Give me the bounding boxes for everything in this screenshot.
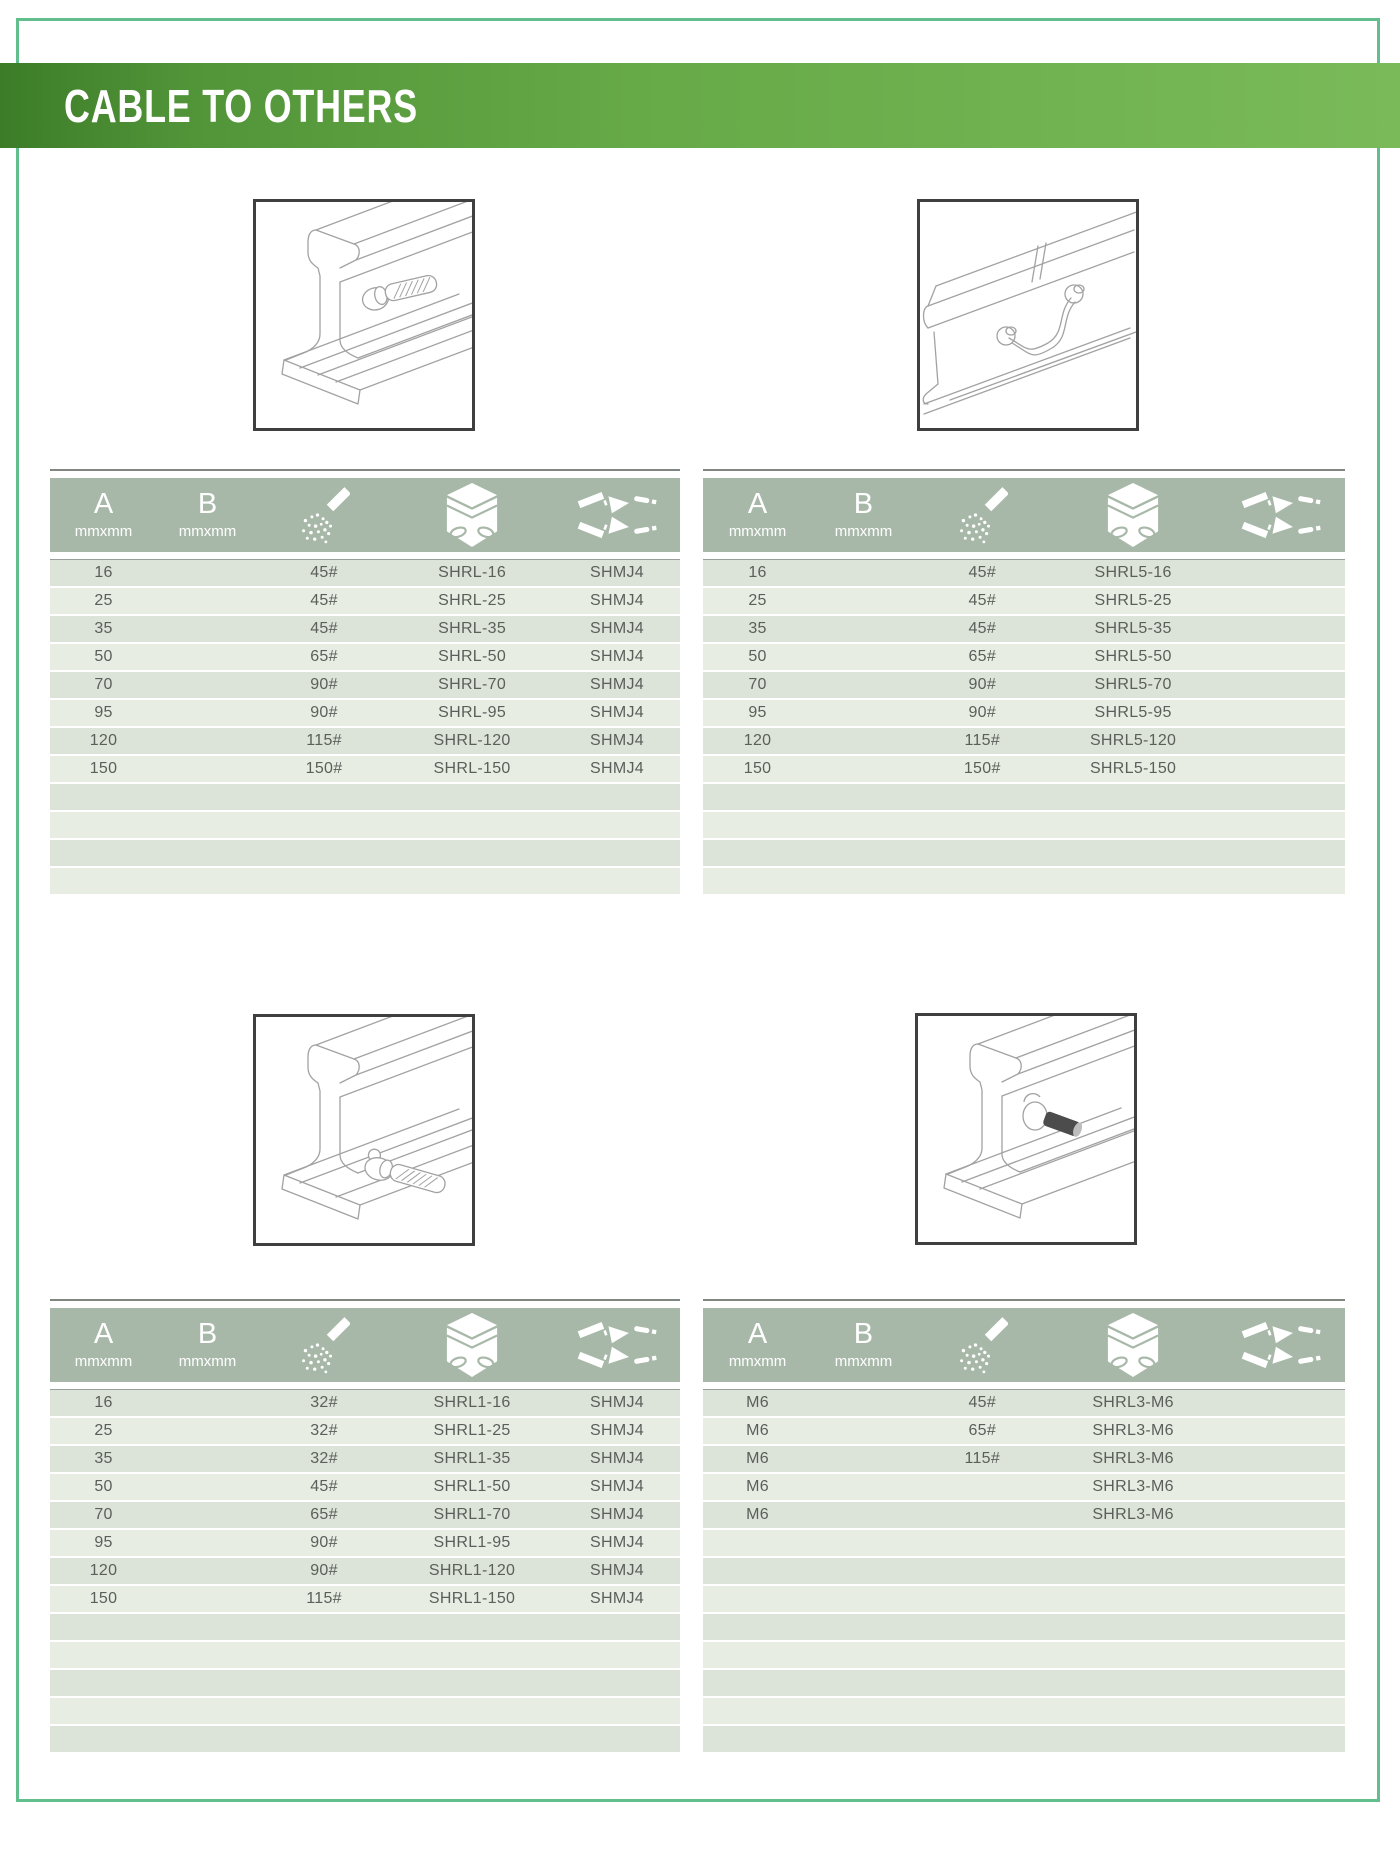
table-row-empty [50,784,680,812]
cell-a: 95 [94,1534,112,1552]
cell-a: 35 [94,1450,112,1468]
cell-powder: 65# [310,1506,338,1524]
cell-a: 16 [94,1394,112,1412]
cell-a: 35 [748,620,766,638]
cell-powder: 115# [964,1450,1000,1468]
cell-a: 50 [748,648,766,666]
cell-a: 150 [90,760,118,778]
spec-table-cable-bond: A mmxmm B mmxmm [703,469,1345,896]
table-row: 2545#SHRL5-25 [703,588,1345,616]
cell-mold: SHRL3-M6 [1092,1394,1174,1412]
cell-powder: 65# [968,648,996,666]
cell-a: M6 [746,1450,769,1468]
table-row: 2532#SHRL1-25SHMJ4 [50,1418,680,1446]
table-row: 5065#SHRL5-50 [703,644,1345,672]
cell-a: 120 [90,732,118,750]
table-row-empty [703,784,1345,812]
cell-mold: SHRL5-150 [1090,760,1176,778]
cell-powder: 90# [310,1562,338,1580]
cell-a: 25 [748,592,766,610]
table-row-empty [50,840,680,868]
cell-a: 35 [94,620,112,638]
rail-foot-cable-drawing [256,1017,472,1243]
welding-powder-icon [956,1315,1008,1375]
cell-joint: SHMJ4 [590,1562,644,1580]
cell-mold: SHRL1-120 [429,1562,515,1580]
welding-powder-icon [298,1315,350,1375]
table-row: 3545#SHRL5-35 [703,616,1345,644]
cell-mold: SHRL-95 [438,704,506,722]
table-row-empty [703,1670,1345,1698]
cell-powder: 32# [310,1422,338,1440]
cell-joint: SHMJ4 [590,1478,644,1496]
cell-mold: SHRL3-M6 [1092,1450,1174,1468]
cable-joint-icon [576,487,658,543]
table-row: 12090#SHRL1-120SHMJ4 [50,1558,680,1586]
table-row-empty [50,812,680,840]
table-header: A mmxmm B mmxmm [703,478,1345,552]
column-header-b: B mmxmm [179,1319,236,1370]
cell-powder: 90# [310,1534,338,1552]
table-body: 1632#SHRL1-16SHMJ42532#SHRL1-25SHMJ43532… [50,1390,680,1754]
table-row: 9590#SHRL-95SHMJ4 [50,700,680,728]
cell-powder: 45# [968,1394,996,1412]
spec-table-cable-to-rail-web: A mmxmm B mmxmm [50,469,680,896]
table-row: 7090#SHRL5-70 [703,672,1345,700]
table-row-empty [703,812,1345,840]
cell-joint: SHMJ4 [590,1450,644,1468]
cell-powder: 150# [964,760,1001,778]
cell-powder: 65# [968,1422,996,1440]
welding-powder-icon [298,485,350,545]
cell-powder: 90# [968,676,996,694]
cell-powder: 150# [306,760,343,778]
cell-joint: SHMJ4 [590,732,644,750]
table-row: 7090#SHRL-70SHMJ4 [50,672,680,700]
illustration-box-cable-to-rail-foot [253,1014,475,1246]
title-banner: CABLE TO OTHERS [0,63,1400,148]
cell-a: 150 [90,1590,118,1608]
table-header: A mmxmm B mmxmm [50,1308,680,1382]
table-body: M645#SHRL3-M6M665#SHRL3-M6M6115#SHRL3-M6… [703,1390,1345,1754]
cable-joint-icon [576,1317,658,1373]
cell-joint: SHMJ4 [590,1506,644,1524]
cell-a: 120 [744,732,772,750]
illustration-box-cable-bond [917,199,1139,431]
table-row: 150115#SHRL1-150SHMJ4 [50,1586,680,1614]
cell-powder: 32# [310,1394,338,1412]
cell-a: 16 [748,564,766,582]
table-row: 9590#SHRL5-95 [703,700,1345,728]
cable-joint-icon [1240,487,1322,543]
cell-joint: SHMJ4 [590,1394,644,1412]
cell-mold: SHRL1-95 [434,1534,511,1552]
rail-bond-cable-drawing [920,202,1136,428]
graphite-mold-icon [1105,1313,1161,1377]
table-row: 150150#SHRL5-150 [703,756,1345,784]
cell-mold: SHRL5-25 [1095,592,1172,610]
table-row-empty [50,1670,680,1698]
cell-mold: SHRL-50 [438,648,506,666]
column-header-a: A mmxmm [729,489,786,540]
cell-a: 25 [94,1422,112,1440]
cell-powder: 115# [306,732,342,750]
cell-mold: SHRL3-M6 [1092,1422,1174,1440]
graphite-mold-icon [1105,483,1161,547]
cell-mold: SHRL-70 [438,676,506,694]
table-top-rule [50,469,680,471]
table-row: 1645#SHRL5-16 [703,560,1345,588]
table-row-empty [50,1642,680,1670]
cell-a: 25 [94,592,112,610]
cell-a: M6 [746,1506,769,1524]
table-row: 5065#SHRL-50SHMJ4 [50,644,680,672]
cell-mold: SHRL5-16 [1095,564,1172,582]
table-top-rule [50,1299,680,1301]
table-row: M6SHRL3-M6 [703,1474,1345,1502]
cell-mold: SHRL1-50 [434,1478,511,1496]
cell-mold: SHRL-25 [438,592,506,610]
cell-powder: 45# [310,564,338,582]
table-row: 150150#SHRL-150SHMJ4 [50,756,680,784]
table-top-rule [703,1299,1345,1301]
cell-mold: SHRL-150 [434,760,511,778]
table-row: 3532#SHRL1-35SHMJ4 [50,1446,680,1474]
graphite-mold-icon [444,1313,500,1377]
cell-powder: 45# [310,1478,338,1496]
table-row-empty [703,1726,1345,1754]
illustration-box-cable-to-rail-web [253,199,475,431]
table-row-empty [50,868,680,896]
table-body: 1645#SHRL5-162545#SHRL5-253545#SHRL5-355… [703,560,1345,896]
cell-joint: SHMJ4 [590,704,644,722]
table-row-empty [703,1698,1345,1726]
cell-powder: 90# [310,676,338,694]
cell-mold: SHRL1-35 [434,1450,511,1468]
cell-mold: SHRL3-M6 [1092,1478,1174,1496]
table-row: 120115#SHRL5-120 [703,728,1345,756]
table-row: 2545#SHRL-25SHMJ4 [50,588,680,616]
cell-mold: SHRL5-95 [1095,704,1172,722]
cell-powder: 115# [306,1590,342,1608]
table-row: M6115#SHRL3-M6 [703,1446,1345,1474]
cell-joint: SHMJ4 [590,1534,644,1552]
table-row: 7065#SHRL1-70SHMJ4 [50,1502,680,1530]
cell-powder: 65# [310,648,338,666]
column-header-a: A mmxmm [75,489,132,540]
table-row-empty [50,1698,680,1726]
welding-powder-icon [956,485,1008,545]
column-header-a: A mmxmm [75,1319,132,1370]
table-header: A mmxmm B mmxmm [50,478,680,552]
table-row: 1632#SHRL1-16SHMJ4 [50,1390,680,1418]
table-row-empty [703,1642,1345,1670]
spec-table-stud: A mmxmm B mmxmm [703,1299,1345,1754]
cell-mold: SHRL1-70 [434,1506,511,1524]
table-row-empty [703,1586,1345,1614]
table-row: 1645#SHRL-16SHMJ4 [50,560,680,588]
cell-powder: 45# [310,620,338,638]
table-row-empty [703,1558,1345,1586]
table-row-empty [50,1614,680,1642]
cell-joint: SHMJ4 [590,1422,644,1440]
cell-joint: SHMJ4 [590,760,644,778]
cell-joint: SHMJ4 [590,1590,644,1608]
cell-a: 50 [94,1478,112,1496]
cell-powder: 90# [968,704,996,722]
table-row: 3545#SHRL-35SHMJ4 [50,616,680,644]
cell-a: M6 [746,1394,769,1412]
cell-joint: SHMJ4 [590,676,644,694]
table-row-empty [703,868,1345,896]
cell-powder: 45# [968,620,996,638]
cell-joint: SHMJ4 [590,592,644,610]
cell-a: 70 [748,676,766,694]
table-row-empty [50,1726,680,1754]
cell-mold: SHRL-120 [434,732,511,750]
illustration-box-stud-to-rail-web [915,1013,1137,1245]
cell-joint: SHMJ4 [590,648,644,666]
table-row: M645#SHRL3-M6 [703,1390,1345,1418]
cell-mold: SHRL5-120 [1090,732,1176,750]
table-body: 1645#SHRL-16SHMJ42545#SHRL-25SHMJ43545#S… [50,560,680,896]
column-header-a: A mmxmm [729,1319,786,1370]
cell-powder: 115# [964,732,1000,750]
table-top-rule [703,469,1345,471]
column-header-b: B mmxmm [835,489,892,540]
cell-powder: 45# [310,592,338,610]
cell-mold: SHRL5-50 [1095,648,1172,666]
cell-a: 70 [94,1506,112,1524]
table-row-empty [703,1614,1345,1642]
cell-mold: SHRL5-35 [1095,620,1172,638]
column-header-b: B mmxmm [835,1319,892,1370]
cell-a: 50 [94,648,112,666]
cell-a: 16 [94,564,112,582]
catalog-page: { "page": { "title": "CABLE TO OTHERS" }… [0,0,1400,1862]
cell-a: 120 [90,1562,118,1580]
table-row-empty [703,1530,1345,1558]
table-row: 120115#SHRL-120SHMJ4 [50,728,680,756]
table-row: M6SHRL3-M6 [703,1502,1345,1530]
graphite-mold-icon [444,483,500,547]
cell-joint: SHMJ4 [590,620,644,638]
table-row: M665#SHRL3-M6 [703,1418,1345,1446]
cell-powder: 45# [968,592,996,610]
cell-powder: 45# [968,564,996,582]
spec-table-cable-to-rail-foot: A mmxmm B mmxmm [50,1299,680,1754]
column-header-b: B mmxmm [179,489,236,540]
cell-a: 150 [744,760,772,778]
page-title: CABLE TO OTHERS [64,79,418,133]
table-header: A mmxmm B mmxmm [703,1308,1345,1382]
cell-mold: SHRL1-16 [434,1394,511,1412]
cell-mold: SHRL1-150 [429,1590,515,1608]
cell-powder: 90# [310,704,338,722]
table-row: 9590#SHRL1-95SHMJ4 [50,1530,680,1558]
cell-a: M6 [746,1422,769,1440]
cable-joint-icon [1240,1317,1322,1373]
cell-powder: 32# [310,1450,338,1468]
table-row-empty [703,840,1345,868]
cell-mold: SHRL3-M6 [1092,1506,1174,1524]
rail-stud-drawing [918,1016,1134,1242]
cell-a: 95 [748,704,766,722]
cell-a: 95 [94,704,112,722]
cell-a: 70 [94,676,112,694]
rail-web-cable-drawing [256,202,472,428]
cell-mold: SHRL-35 [438,620,506,638]
cell-mold: SHRL1-25 [434,1422,511,1440]
table-row: 5045#SHRL1-50SHMJ4 [50,1474,680,1502]
cell-a: M6 [746,1478,769,1496]
cell-joint: SHMJ4 [590,564,644,582]
cell-mold: SHRL-16 [438,564,506,582]
cell-mold: SHRL5-70 [1095,676,1172,694]
